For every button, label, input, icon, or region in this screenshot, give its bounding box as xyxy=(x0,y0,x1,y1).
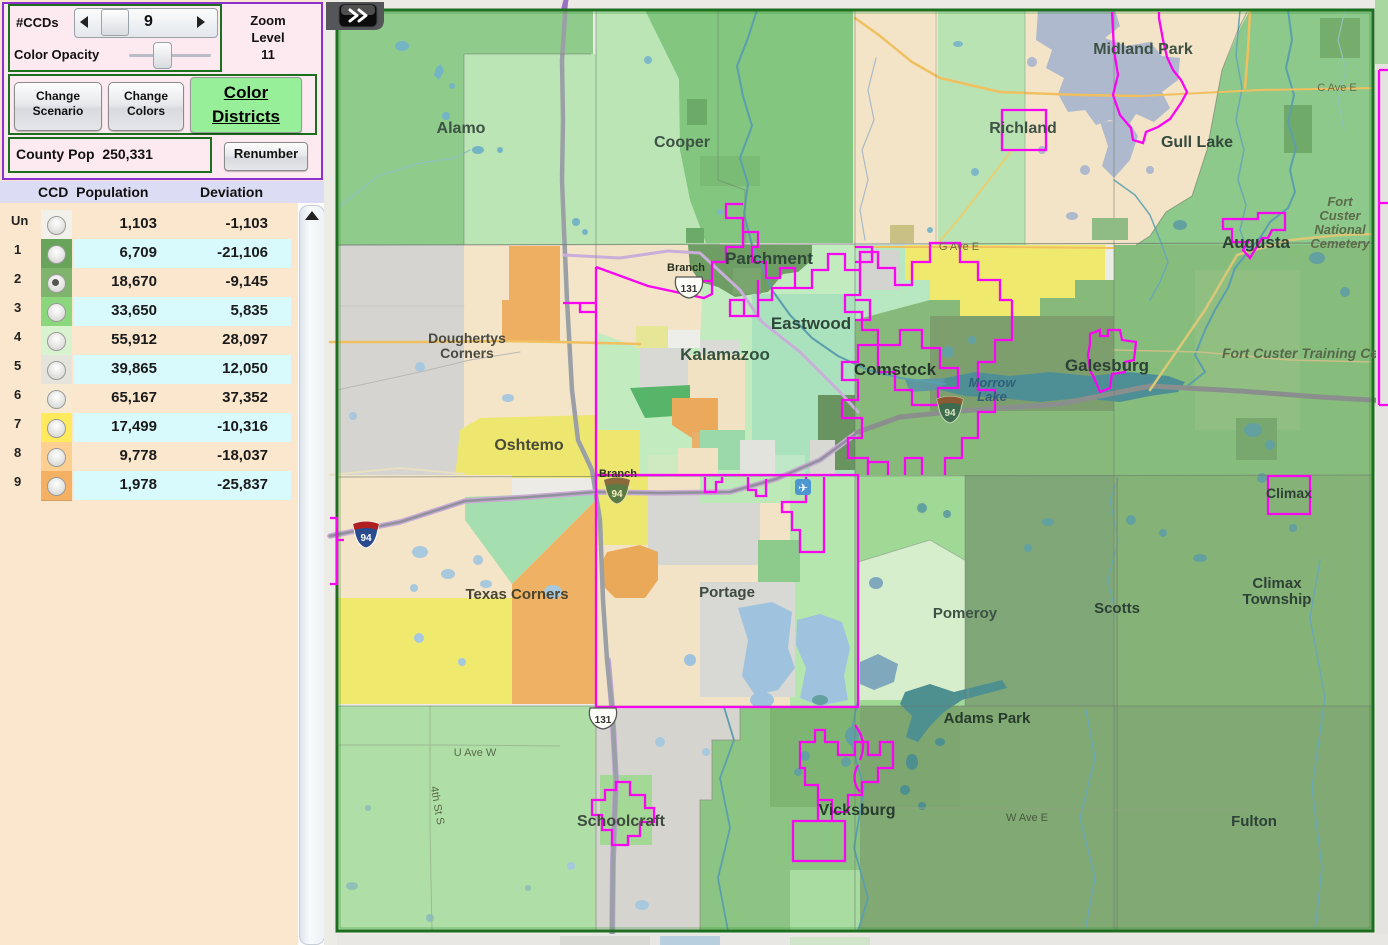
svg-text:Galesburg: Galesburg xyxy=(1065,356,1149,375)
svg-text:Portage: Portage xyxy=(699,584,755,601)
svg-text:Alamo: Alamo xyxy=(437,120,486,137)
svg-text:Cemetery: Cemetery xyxy=(1310,236,1370,251)
svg-text:Township: Township xyxy=(1243,591,1312,608)
svg-text:Scotts: Scotts xyxy=(1094,600,1140,617)
svg-text:Augusta: Augusta xyxy=(1222,233,1291,252)
svg-text:131: 131 xyxy=(595,715,612,726)
svg-text:Gull Lake: Gull Lake xyxy=(1161,134,1233,151)
svg-text:131: 131 xyxy=(681,284,698,295)
svg-text:94: 94 xyxy=(611,489,623,500)
svg-text:U Ave W: U Ave W xyxy=(454,747,497,759)
svg-text:Comstock: Comstock xyxy=(854,360,937,379)
svg-text:Vicksburg: Vicksburg xyxy=(818,802,895,819)
svg-text:Pomeroy: Pomeroy xyxy=(933,605,998,622)
svg-text:Cooper: Cooper xyxy=(654,134,710,151)
svg-text:W Ave E: W Ave E xyxy=(1006,812,1048,824)
svg-text:94: 94 xyxy=(944,408,956,419)
svg-text:Eastwood: Eastwood xyxy=(771,314,851,333)
svg-text:Parchment: Parchment xyxy=(725,249,813,268)
svg-text:Custer: Custer xyxy=(1319,208,1361,223)
svg-text:Schoolcraft: Schoolcraft xyxy=(577,813,666,830)
svg-text:Climax: Climax xyxy=(1266,485,1312,501)
svg-text:Morrow: Morrow xyxy=(969,375,1017,390)
svg-text:Fort: Fort xyxy=(1327,194,1353,209)
svg-text:✈: ✈ xyxy=(798,481,808,495)
svg-text:Adams Park: Adams Park xyxy=(944,710,1031,727)
svg-text:Oshtemo: Oshtemo xyxy=(494,437,564,454)
svg-text:Branch: Branch xyxy=(667,262,705,274)
svg-text:Midland Park: Midland Park xyxy=(1093,41,1193,58)
svg-text:Texas Corners: Texas Corners xyxy=(465,586,568,603)
svg-text:National: National xyxy=(1314,222,1366,237)
svg-text:Corners: Corners xyxy=(440,345,494,361)
svg-text:Fulton: Fulton xyxy=(1231,813,1277,830)
svg-text:C Ave E: C Ave E xyxy=(1317,82,1357,94)
svg-text:Fort Custer Training Cent: Fort Custer Training Cent xyxy=(1222,345,1388,361)
svg-text:G Ave E: G Ave E xyxy=(939,241,979,253)
svg-text:Richland: Richland xyxy=(989,120,1057,137)
svg-text:Climax: Climax xyxy=(1252,575,1302,592)
svg-text:94: 94 xyxy=(360,533,372,544)
svg-text:Kalamazoo: Kalamazoo xyxy=(680,345,770,364)
svg-text:Lake: Lake xyxy=(977,389,1007,404)
svg-text:Doughertys: Doughertys xyxy=(428,330,506,346)
